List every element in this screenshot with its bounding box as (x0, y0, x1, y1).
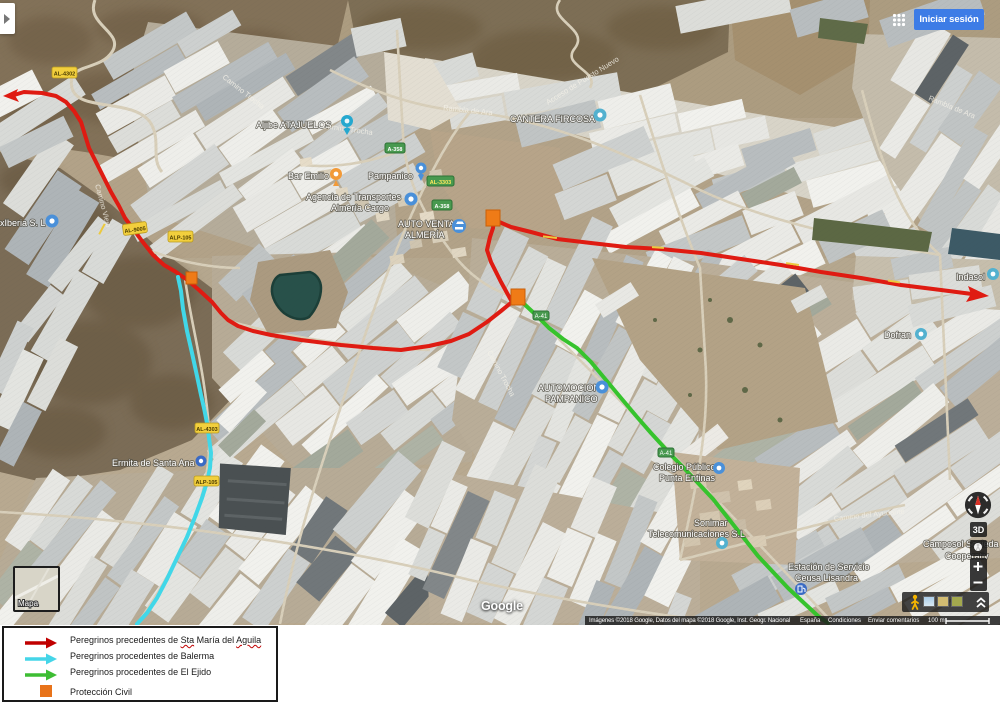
svg-text:A-358: A-358 (435, 204, 450, 210)
svg-text:AL-4302: AL-4302 (54, 72, 75, 78)
svg-text:CANTERA FIRCOSA: CANTERA FIRCOSA (510, 114, 595, 124)
svg-text:Ermita de Santa Ana: Ermita de Santa Ana (112, 458, 195, 468)
svg-text:A-41: A-41 (535, 314, 548, 320)
svg-text:Aljibe ATAJUELOS: Aljibe ATAJUELOS (256, 120, 331, 130)
svg-text:Colegio Público: Colegio Público (653, 462, 716, 472)
svg-text:AL-4303: AL-4303 (196, 427, 217, 433)
svg-text:ALP-105: ALP-105 (169, 236, 191, 242)
svg-text:Punta Entinas: Punta Entinas (659, 473, 716, 483)
svg-text:ALP-105: ALP-105 (195, 480, 217, 486)
svg-text:Sonimar: Sonimar (694, 518, 728, 528)
svg-text:Mapa: Mapa (18, 599, 39, 608)
svg-text:Pampanico: Pampanico (368, 171, 413, 181)
svg-text:Agencia de Transportes: Agencia de Transportes (306, 192, 402, 202)
svg-text:Almería Cargo: Almería Cargo (331, 203, 389, 213)
svg-text:A-358: A-358 (388, 147, 403, 153)
svg-text:AUTOMOCION: AUTOMOCION (538, 383, 600, 393)
svg-text:Dofran: Dofran (884, 330, 911, 340)
svg-text:PAMPANICO: PAMPANICO (545, 394, 598, 404)
svg-text:Telecomunicaciones S.L: Telecomunicaciones S.L (648, 529, 745, 539)
svg-text:Ceusa Lisandra: Ceusa Lisandra (795, 573, 858, 583)
svg-text:Camposol Socieda: Camposol Socieda (923, 539, 999, 549)
svg-text:AUTO VENTA: AUTO VENTA (398, 219, 455, 229)
svg-text:A-41: A-41 (660, 451, 673, 457)
svg-text:xIberia S. L: xIberia S. L (0, 218, 46, 228)
svg-text:Bar Emilio: Bar Emilio (288, 171, 329, 181)
svg-text:Estación de Servicio: Estación de Servicio (788, 562, 870, 572)
svg-text:Indasol: Indasol (956, 272, 985, 282)
svg-text:ALMERÍA: ALMERÍA (405, 230, 445, 240)
svg-text:AL-3303: AL-3303 (430, 180, 451, 186)
